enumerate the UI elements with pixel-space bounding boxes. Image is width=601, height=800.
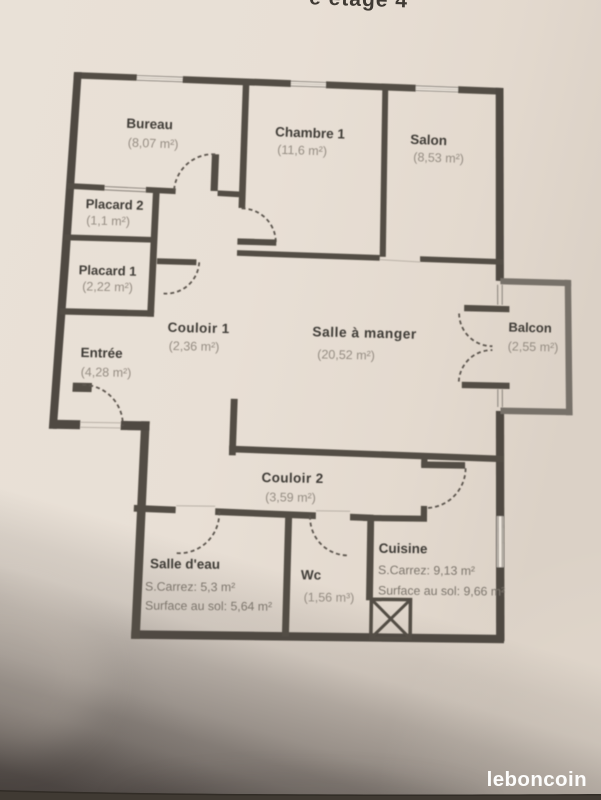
svg-text:(1,56 m³): (1,56 m³) [304, 590, 355, 604]
svg-text:Chambre 1: Chambre 1 [275, 124, 346, 141]
svg-text:leboncoin: leboncoin [487, 768, 587, 791]
svg-text:(20,52 m²): (20,52 m²) [317, 347, 375, 362]
svg-text:Salle à manger: Salle à manger [312, 324, 417, 341]
svg-text:Surface au sol: 9,66 m²: Surface au sol: 9,66 m² [378, 584, 505, 599]
svg-text:Bureau: Bureau [126, 116, 173, 133]
svg-text:S.Carrez: 5,3 m²: S.Carrez: 5,3 m² [145, 580, 235, 595]
svg-text:S.Carrez: 9,13 m²: S.Carrez: 9,13 m² [378, 563, 475, 578]
svg-text:Cuisine: Cuisine [379, 541, 428, 557]
svg-text:Entrée: Entrée [80, 345, 123, 361]
svg-text:Balcon: Balcon [508, 319, 552, 335]
svg-text:(4,28 m²): (4,28 m²) [81, 365, 132, 380]
svg-text:Couloir 1: Couloir 1 [167, 320, 230, 336]
svg-text:(8,07 m²): (8,07 m²) [128, 136, 179, 152]
svg-text:(1,1 m²): (1,1 m²) [86, 213, 130, 228]
svg-text:(2,55 m²): (2,55 m²) [508, 339, 559, 354]
svg-text:Surface au sol: 5,64 m²: Surface au sol: 5,64 m² [145, 599, 272, 614]
svg-text:Placard 1: Placard 1 [79, 262, 137, 279]
svg-text:Placard 2: Placard 2 [86, 196, 144, 213]
svg-text:Couloir 2: Couloir 2 [261, 470, 323, 486]
svg-text:(3,59 m²): (3,59 m²) [265, 490, 316, 505]
svg-text:Salon: Salon [410, 132, 447, 148]
svg-text:(2,36 m²): (2,36 m²) [169, 339, 220, 354]
svg-text:Wc: Wc [301, 567, 322, 582]
svg-text:(11,6 m²): (11,6 m²) [277, 143, 327, 159]
svg-text:(8,53 m²): (8,53 m²) [413, 150, 464, 166]
svg-text:Salle d'eau: Salle d'eau [150, 556, 220, 572]
svg-text:(2,22 m²): (2,22 m²) [82, 279, 133, 294]
